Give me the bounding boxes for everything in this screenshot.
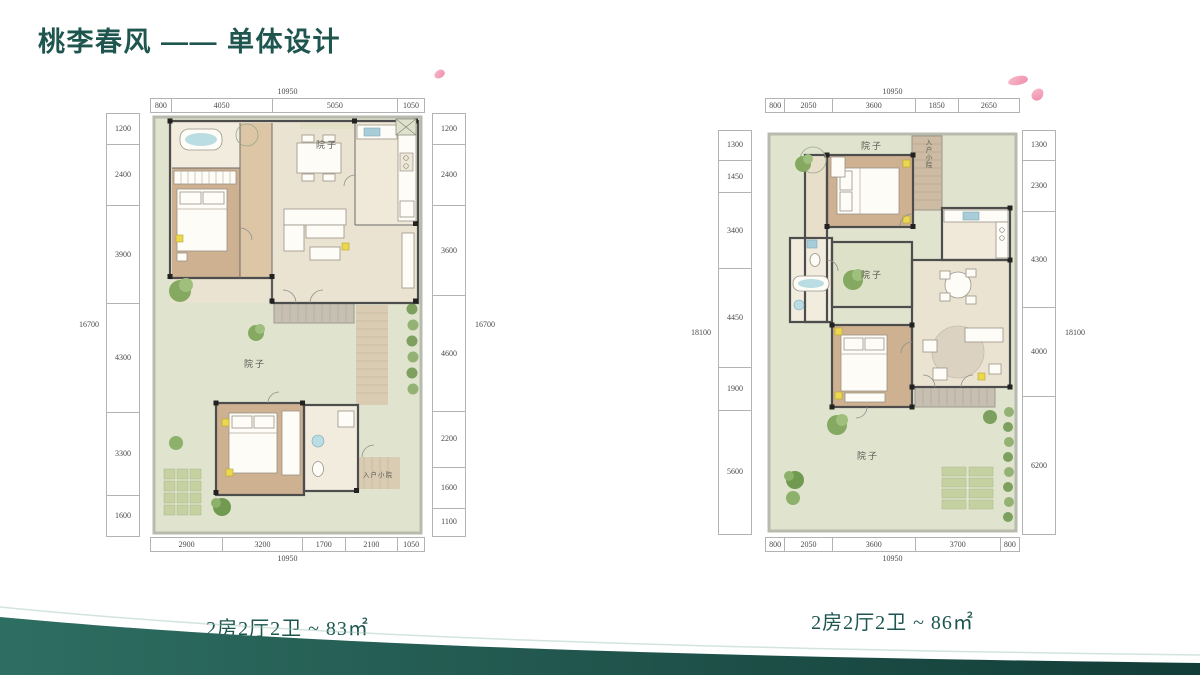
planter (396, 119, 416, 135)
dim-strip-left: 18100130014503400445019005600 (718, 130, 752, 535)
porch (915, 387, 995, 407)
room-label-yard-mid: 院子 (244, 358, 266, 370)
floorplan-86-group: 109508002050360018502650 800205036003700… (765, 85, 1020, 645)
room-label-entry-yard: 入户小院 (924, 139, 932, 169)
petal-icon (433, 68, 446, 79)
floorplan-86: 院子 入户小院 院子 院子 (765, 130, 1020, 535)
petal-icon (1030, 86, 1045, 102)
dim-strip-right: 167001200240036004600220016001100 (432, 113, 466, 537)
dim-strip-bottom: 80020503600370080010950 (765, 537, 1020, 565)
dim-strip-right: 1810013002300430040006200 (1022, 130, 1056, 535)
porch (274, 303, 354, 323)
room-label-yard-mid: 院子 (861, 269, 883, 281)
master-bed-icon (177, 189, 227, 261)
room-label-entry-yard: 入户小院 (363, 470, 393, 479)
room-label-yard-top: 院子 (861, 140, 883, 152)
wardrobe (174, 171, 236, 184)
floorplan-83: 院子 院子 入户小院 (150, 113, 425, 537)
room-label-yard-top: 院子 (316, 139, 338, 151)
room-label-yard-bottom: 院子 (857, 450, 879, 462)
page-title: 桃李春风 —— 单体设计 (38, 20, 341, 59)
slide: 桃李春风 —— 单体设计 10950800405050501050 290032… (0, 0, 1200, 675)
bottom-swoosh-decoration (0, 595, 1200, 675)
bed2-icon (229, 411, 300, 475)
dim-strip-left: 16700120024003900430033001600 (106, 113, 140, 537)
dim-strip-top: 109508002050360018502650 (765, 85, 1020, 113)
floorplan-83-group: 10950800405050501050 2900320017002100105… (150, 85, 425, 645)
dim-strip-top: 10950800405050501050 (150, 85, 425, 113)
bathtub-icon (180, 129, 222, 150)
dim-strip-bottom: 2900320017002100105010950 (150, 537, 425, 565)
